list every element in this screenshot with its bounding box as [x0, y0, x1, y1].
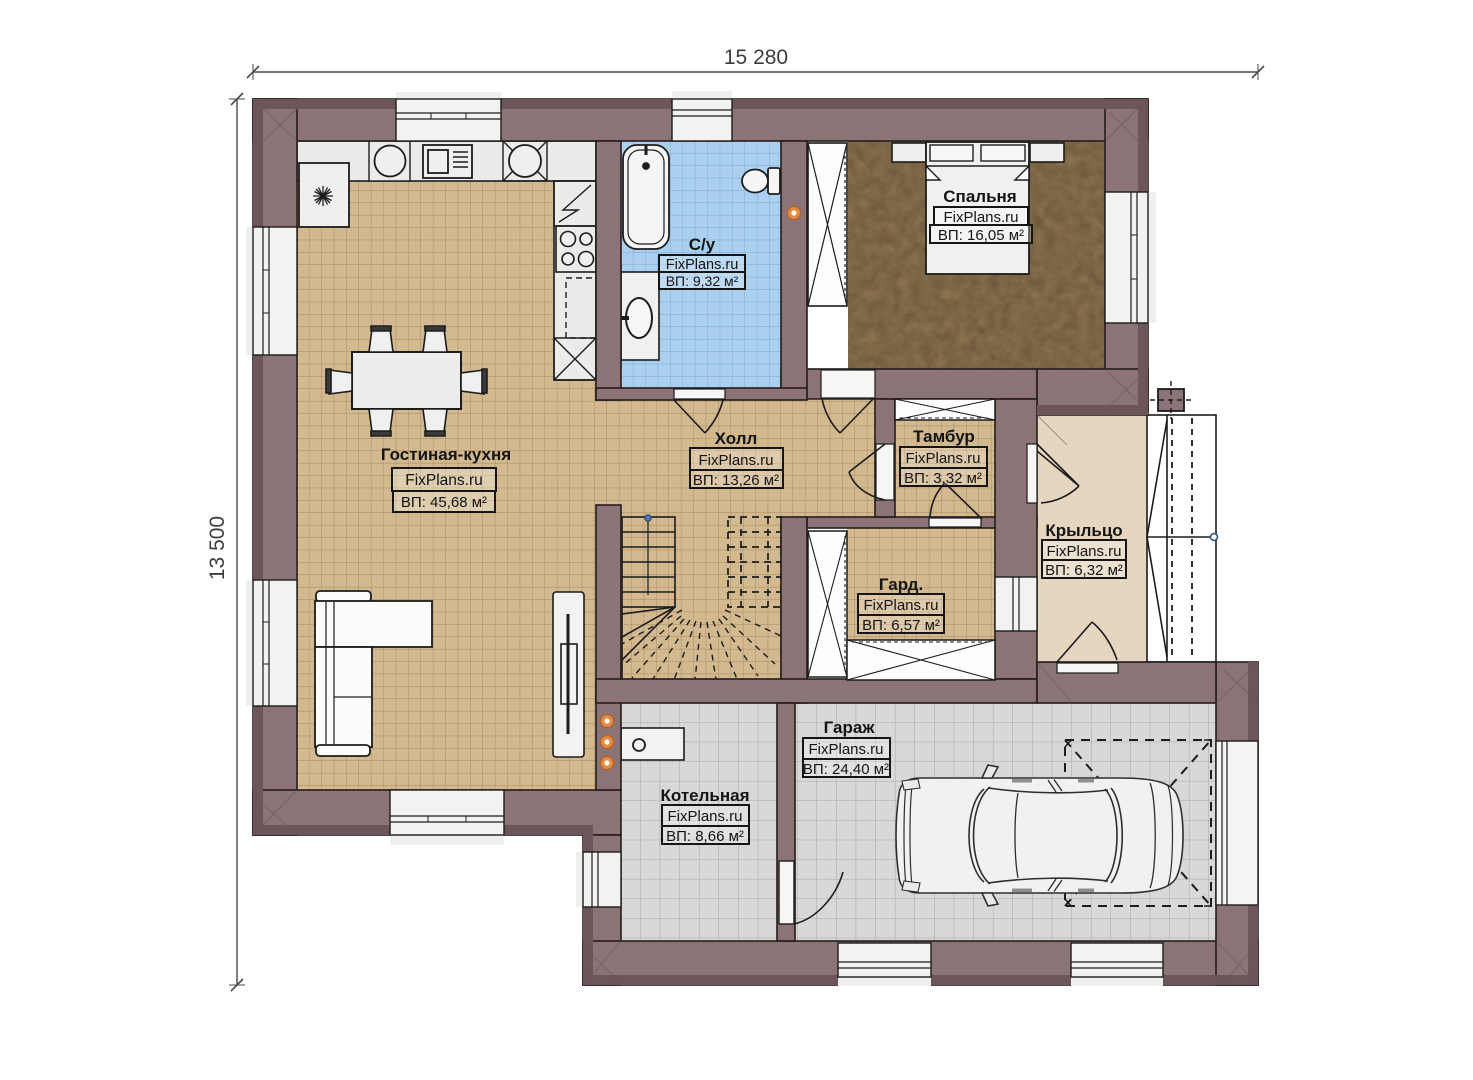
svg-text:FixPlans.ru: FixPlans.ru	[1046, 543, 1121, 560]
svg-text:Тамбур: Тамбур	[913, 427, 975, 446]
svg-text:ВП: 8,66 м²: ВП: 8,66 м²	[666, 828, 744, 845]
svg-text:ВП: 3,32 м²: ВП: 3,32 м²	[904, 470, 982, 487]
svg-text:Гостиная-кухня: Гостиная-кухня	[381, 445, 511, 464]
svg-text:Гард.: Гард.	[879, 575, 923, 594]
svg-text:С/у: С/у	[689, 235, 716, 254]
svg-text:ВП: 13,26 м²: ВП: 13,26 м²	[693, 472, 779, 489]
svg-text:ВП: 24,40 м²: ВП: 24,40 м²	[803, 761, 889, 778]
svg-text:ВП: 45,68 м²: ВП: 45,68 м²	[401, 494, 487, 511]
svg-text:15 280: 15 280	[724, 46, 788, 69]
svg-text:FixPlans.ru: FixPlans.ru	[905, 450, 980, 467]
svg-text:FixPlans.ru: FixPlans.ru	[666, 257, 739, 273]
svg-text:ВП: 16,05 м²: ВП: 16,05 м²	[938, 227, 1024, 244]
svg-text:FixPlans.ru: FixPlans.ru	[667, 808, 742, 825]
svg-text:FixPlans.ru: FixPlans.ru	[863, 597, 938, 614]
svg-text:Спальня: Спальня	[943, 187, 1016, 206]
svg-text:FixPlans.ru: FixPlans.ru	[943, 209, 1018, 226]
svg-text:ВП: 6,57 м²: ВП: 6,57 м²	[862, 617, 940, 634]
svg-text:ВП: 6,32 м²: ВП: 6,32 м²	[1045, 562, 1123, 579]
svg-text:13 500: 13 500	[206, 516, 229, 580]
svg-text:ВП: 9,32 м²: ВП: 9,32 м²	[666, 273, 739, 289]
svg-text:FixPlans.ru: FixPlans.ru	[405, 472, 483, 489]
svg-text:FixPlans.ru: FixPlans.ru	[808, 741, 883, 758]
svg-text:FixPlans.ru: FixPlans.ru	[698, 452, 773, 469]
svg-text:Крыльцо: Крыльцо	[1045, 521, 1122, 540]
svg-text:Холл: Холл	[715, 429, 758, 448]
svg-text:Гараж: Гараж	[824, 718, 876, 737]
svg-text:Котельная: Котельная	[660, 786, 749, 805]
